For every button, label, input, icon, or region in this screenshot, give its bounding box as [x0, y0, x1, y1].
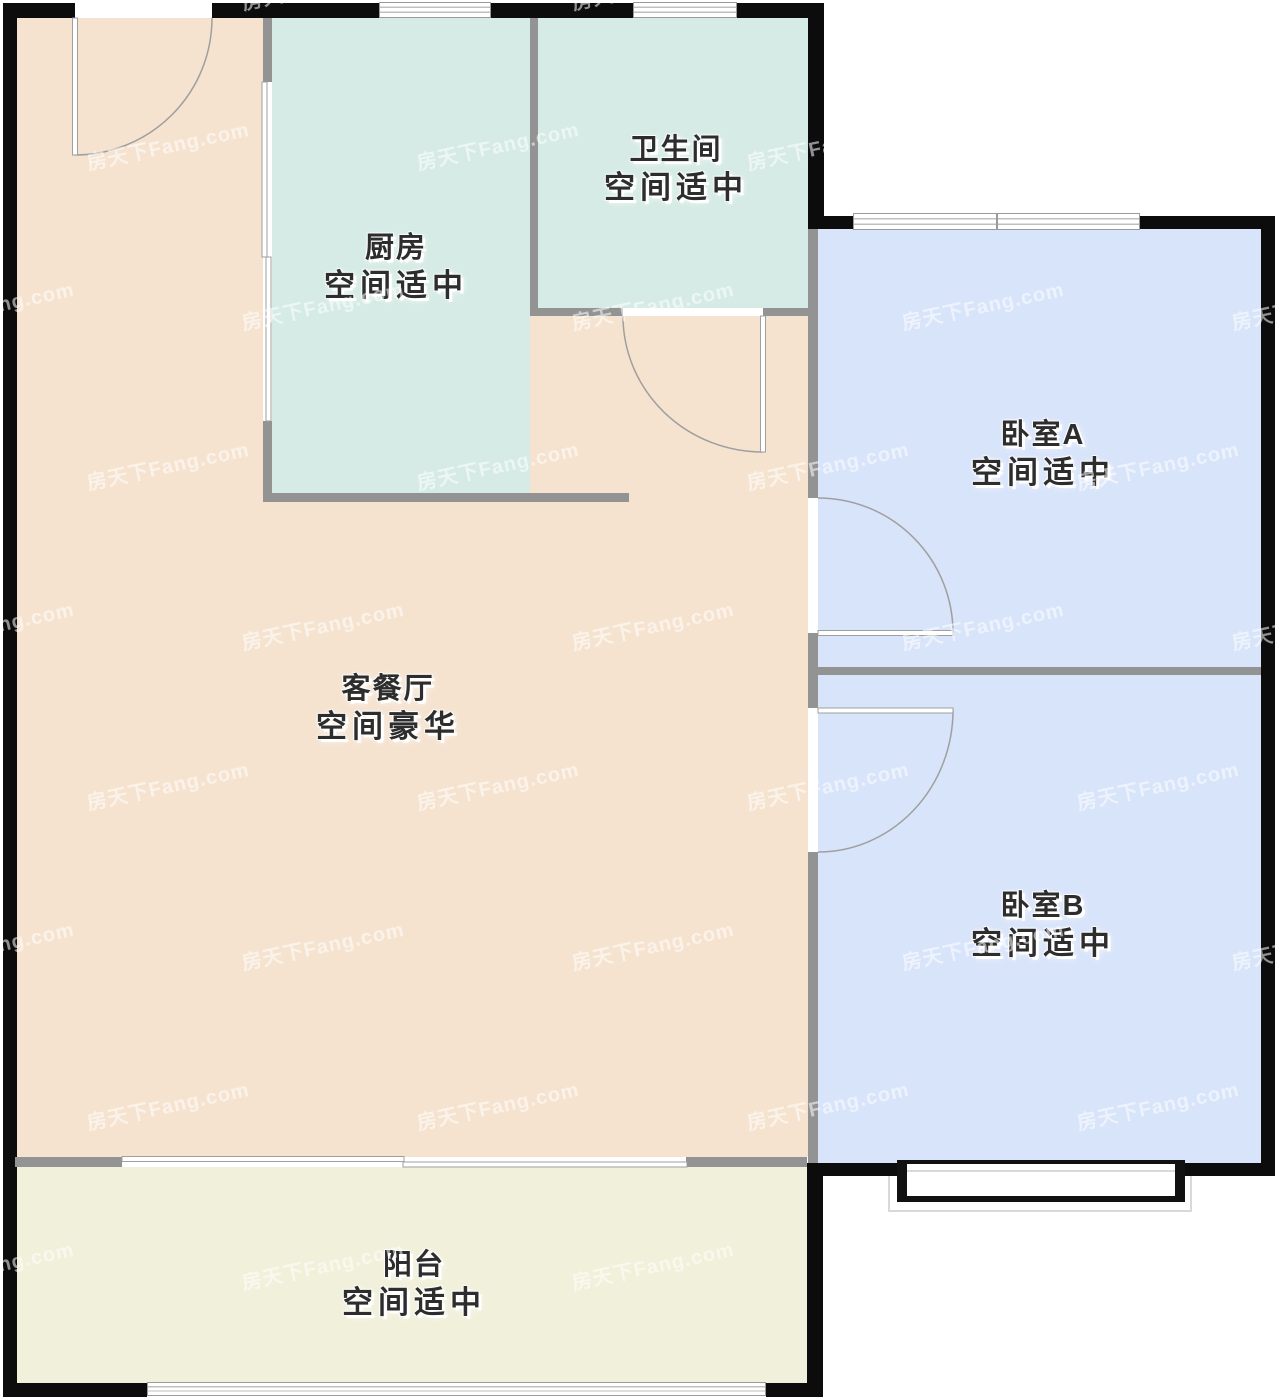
room-label-kitchen: 厨房 空间适中 — [324, 230, 468, 305]
entry-door-leaf — [73, 18, 78, 155]
balcony-name: 阳台 — [342, 1247, 486, 1284]
kitchen-name: 厨房 — [324, 230, 468, 267]
bedroom-a-door-leaf — [818, 631, 953, 636]
room-label-bathroom: 卫生间 空间适中 — [604, 132, 748, 207]
bedroom-b-door-arc — [818, 710, 953, 852]
kitchen-sliding-panel-2 — [266, 257, 271, 421]
bedroom-a-door-arc — [818, 498, 953, 633]
bathroom-status: 空间适中 — [604, 169, 748, 207]
bedroom-b-status: 空间适中 — [971, 925, 1115, 963]
bedroom-a-name: 卧室A — [971, 417, 1115, 454]
entry-door-arc — [75, 18, 212, 155]
room-label-bedroom-b: 卧室B 空间适中 — [971, 888, 1115, 963]
bathroom-door-leaf — [761, 316, 766, 452]
balcony-sliding-panel-2 — [403, 1162, 687, 1167]
bedroom-a-status: 空间适中 — [971, 454, 1115, 492]
door-symbols — [0, 0, 1279, 1400]
kitchen-status: 空间适中 — [324, 267, 468, 305]
kitchen-sliding-panel-1 — [262, 82, 267, 257]
bathroom-name: 卫生间 — [604, 132, 748, 169]
living-dining-name: 客餐厅 — [316, 671, 460, 708]
floor-plan: 厨房 空间适中 卫生间 空间适中 客餐厅 空间豪华 卧室A 空间适中 卧室B 空… — [0, 0, 1279, 1400]
living-dining-status: 空间豪华 — [316, 708, 460, 746]
room-label-balcony: 阳台 空间适中 — [342, 1247, 486, 1322]
bedroom-b-name: 卧室B — [971, 888, 1115, 925]
room-label-bedroom-a: 卧室A 空间适中 — [971, 417, 1115, 492]
bedroom-b-door-leaf — [818, 708, 953, 713]
room-label-living-dining: 客餐厅 空间豪华 — [316, 671, 460, 746]
balcony-status: 空间适中 — [342, 1284, 486, 1322]
bathroom-door-arc — [623, 316, 763, 452]
balcony-sliding-panel-1 — [122, 1157, 404, 1162]
